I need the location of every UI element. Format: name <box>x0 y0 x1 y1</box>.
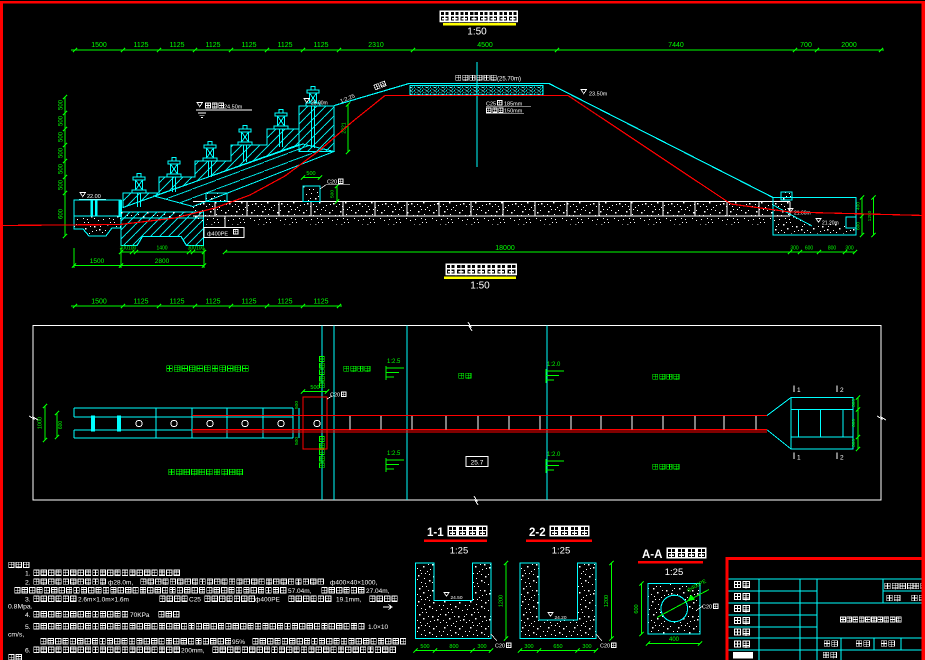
svg-text:2.: 2. <box>25 579 31 586</box>
svg-text:C20: C20 <box>495 644 505 650</box>
svg-text:650: 650 <box>553 644 562 650</box>
svg-text:300: 300 <box>851 399 857 407</box>
svg-text:500: 500 <box>59 147 65 158</box>
svg-text:23.50m: 23.50m <box>589 92 608 98</box>
svg-text:3.: 3. <box>25 597 31 604</box>
svg-text:18000: 18000 <box>495 245 515 252</box>
svg-text:300: 300 <box>524 644 533 650</box>
svg-text:1125: 1125 <box>169 42 184 49</box>
svg-text:1125: 1125 <box>133 299 148 306</box>
svg-text:57.04m,: 57.04m, <box>288 588 312 595</box>
svg-text:700: 700 <box>800 42 812 49</box>
svg-text:2-2: 2-2 <box>529 527 546 539</box>
svg-text:500: 500 <box>310 385 319 391</box>
svg-text:27.04m,: 27.04m, <box>366 588 390 595</box>
svg-text:1125: 1125 <box>205 299 220 306</box>
svg-text:1:2.5: 1:2.5 <box>387 451 401 457</box>
svg-text:1-1: 1-1 <box>427 527 444 539</box>
svg-text:500: 500 <box>294 437 300 445</box>
svg-text:600: 600 <box>634 604 640 613</box>
svg-text:1125: 1125 <box>205 42 220 49</box>
svg-text:1:50: 1:50 <box>467 27 487 38</box>
svg-text:95%: 95% <box>232 639 245 646</box>
svg-text:5.: 5. <box>25 624 31 631</box>
svg-text:500: 500 <box>59 131 65 142</box>
svg-text:300: 300 <box>845 246 854 252</box>
svg-text:300: 300 <box>790 246 799 252</box>
svg-text:1200: 1200 <box>867 210 873 221</box>
svg-text:500: 500 <box>59 163 65 174</box>
svg-text:1:2.5: 1:2.5 <box>387 359 401 365</box>
svg-text:200mm,: 200mm, <box>181 647 205 654</box>
svg-text:2: 2 <box>840 387 844 394</box>
svg-text:1: 1 <box>797 455 801 462</box>
svg-text:6.: 6. <box>25 647 31 654</box>
svg-text:A-A: A-A <box>642 549 662 561</box>
svg-text:500: 500 <box>420 644 429 650</box>
svg-text:1:50: 1:50 <box>470 281 490 292</box>
svg-text:0.8Mpa.: 0.8Mpa. <box>8 604 33 611</box>
svg-text:1:25: 1:25 <box>450 546 469 557</box>
svg-text:1:2.0: 1:2.0 <box>547 362 561 368</box>
svg-text:(25.70m): (25.70m) <box>497 77 521 83</box>
svg-text:1500: 1500 <box>91 299 107 306</box>
svg-text:1:25: 1:25 <box>552 546 571 557</box>
svg-text:1125: 1125 <box>133 42 148 49</box>
svg-text:400: 400 <box>669 637 680 643</box>
svg-text:24.50: 24.50 <box>451 595 463 601</box>
svg-text:24.20: 24.20 <box>555 615 567 621</box>
svg-text:500: 500 <box>59 99 65 110</box>
svg-text:1125: 1125 <box>169 299 184 306</box>
svg-text:ф400PE: ф400PE <box>255 597 281 604</box>
svg-text:500: 500 <box>294 401 300 409</box>
svg-text:70KPa: 70KPa <box>130 612 150 619</box>
svg-text:500: 500 <box>330 190 336 198</box>
svg-text:500: 500 <box>59 179 65 190</box>
svg-text:400: 400 <box>856 202 862 210</box>
svg-text:600: 600 <box>856 222 862 230</box>
svg-text:800: 800 <box>828 246 837 252</box>
svg-text:1:2.0: 1:2.0 <box>547 452 561 458</box>
svg-text:300: 300 <box>582 644 591 650</box>
svg-text:1.0×10: 1.0×10 <box>368 624 388 631</box>
svg-text:1500: 1500 <box>90 258 105 265</box>
svg-text:C25: C25 <box>189 597 201 604</box>
svg-text:21.00m: 21.00m <box>794 211 811 217</box>
svg-text:19.1mm,: 19.1mm, <box>336 597 361 604</box>
svg-text:600: 600 <box>851 419 857 427</box>
svg-text:1200: 1200 <box>604 595 610 607</box>
svg-text:cm/s,: cm/s, <box>8 632 24 639</box>
svg-text:2: 2 <box>840 455 844 462</box>
svg-text:C20: C20 <box>600 644 610 650</box>
svg-text:ф28.0m,: ф28.0m, <box>108 579 133 586</box>
svg-text:25.00m: 25.00m <box>311 101 328 107</box>
svg-text:1:25: 1:25 <box>665 567 684 578</box>
svg-text:600: 600 <box>805 246 814 252</box>
svg-text:1200: 1200 <box>499 595 505 607</box>
svg-text:4500: 4500 <box>477 42 493 49</box>
svg-text:C20: C20 <box>330 393 340 399</box>
svg-text:300100: 300100 <box>120 246 137 252</box>
svg-text:800: 800 <box>449 644 458 650</box>
svg-text:1125: 1125 <box>313 42 328 49</box>
svg-text:1000: 1000 <box>38 417 44 429</box>
svg-text:1125: 1125 <box>277 42 292 49</box>
svg-text:1125: 1125 <box>277 299 292 306</box>
svg-text:2000: 2000 <box>841 42 857 49</box>
svg-text:2.6m×1.0m×1.6m: 2.6m×1.0m×1.6m <box>78 597 129 604</box>
svg-text:300100: 300100 <box>188 246 205 252</box>
svg-text:600: 600 <box>58 421 64 430</box>
svg-text:ф400×40×1000,: ф400×40×1000, <box>330 579 377 586</box>
svg-text:25.7: 25.7 <box>471 460 484 467</box>
svg-text:1125: 1125 <box>241 42 256 49</box>
svg-text:300: 300 <box>477 644 486 650</box>
svg-text:1400: 1400 <box>156 246 167 252</box>
svg-text:1125: 1125 <box>313 299 328 306</box>
svg-text:300: 300 <box>851 439 857 447</box>
svg-text:500: 500 <box>306 171 315 177</box>
svg-text:500: 500 <box>59 115 65 126</box>
svg-text:1500: 1500 <box>91 42 107 49</box>
svg-text:600: 600 <box>59 208 65 219</box>
svg-text:1: 1 <box>797 387 801 394</box>
svg-text:1125: 1125 <box>241 299 256 306</box>
svg-text:4.: 4. <box>25 612 31 619</box>
svg-text:21.20m: 21.20m <box>822 221 839 227</box>
svg-text:2800: 2800 <box>155 258 170 265</box>
svg-text:1.: 1. <box>25 571 31 578</box>
svg-text:ф400PE: ф400PE <box>207 232 228 238</box>
svg-text:7440: 7440 <box>668 42 684 49</box>
svg-text:C20: C20 <box>702 605 712 611</box>
svg-text:2310: 2310 <box>368 42 384 49</box>
